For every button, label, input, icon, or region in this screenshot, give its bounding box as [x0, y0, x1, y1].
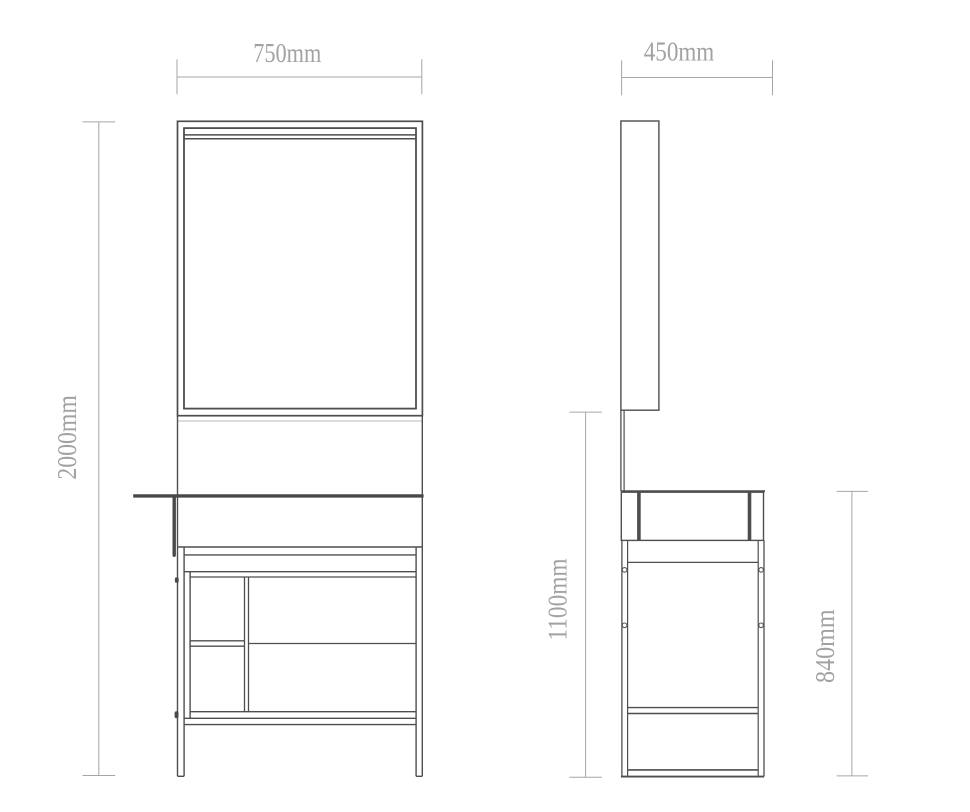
svg-text:840mm: 840mm [810, 609, 840, 683]
svg-text:750mm: 750mm [253, 38, 321, 68]
svg-text:2000mm: 2000mm [52, 395, 82, 480]
svg-text:1100mm: 1100mm [543, 559, 573, 641]
svg-text:450mm: 450mm [644, 37, 715, 67]
